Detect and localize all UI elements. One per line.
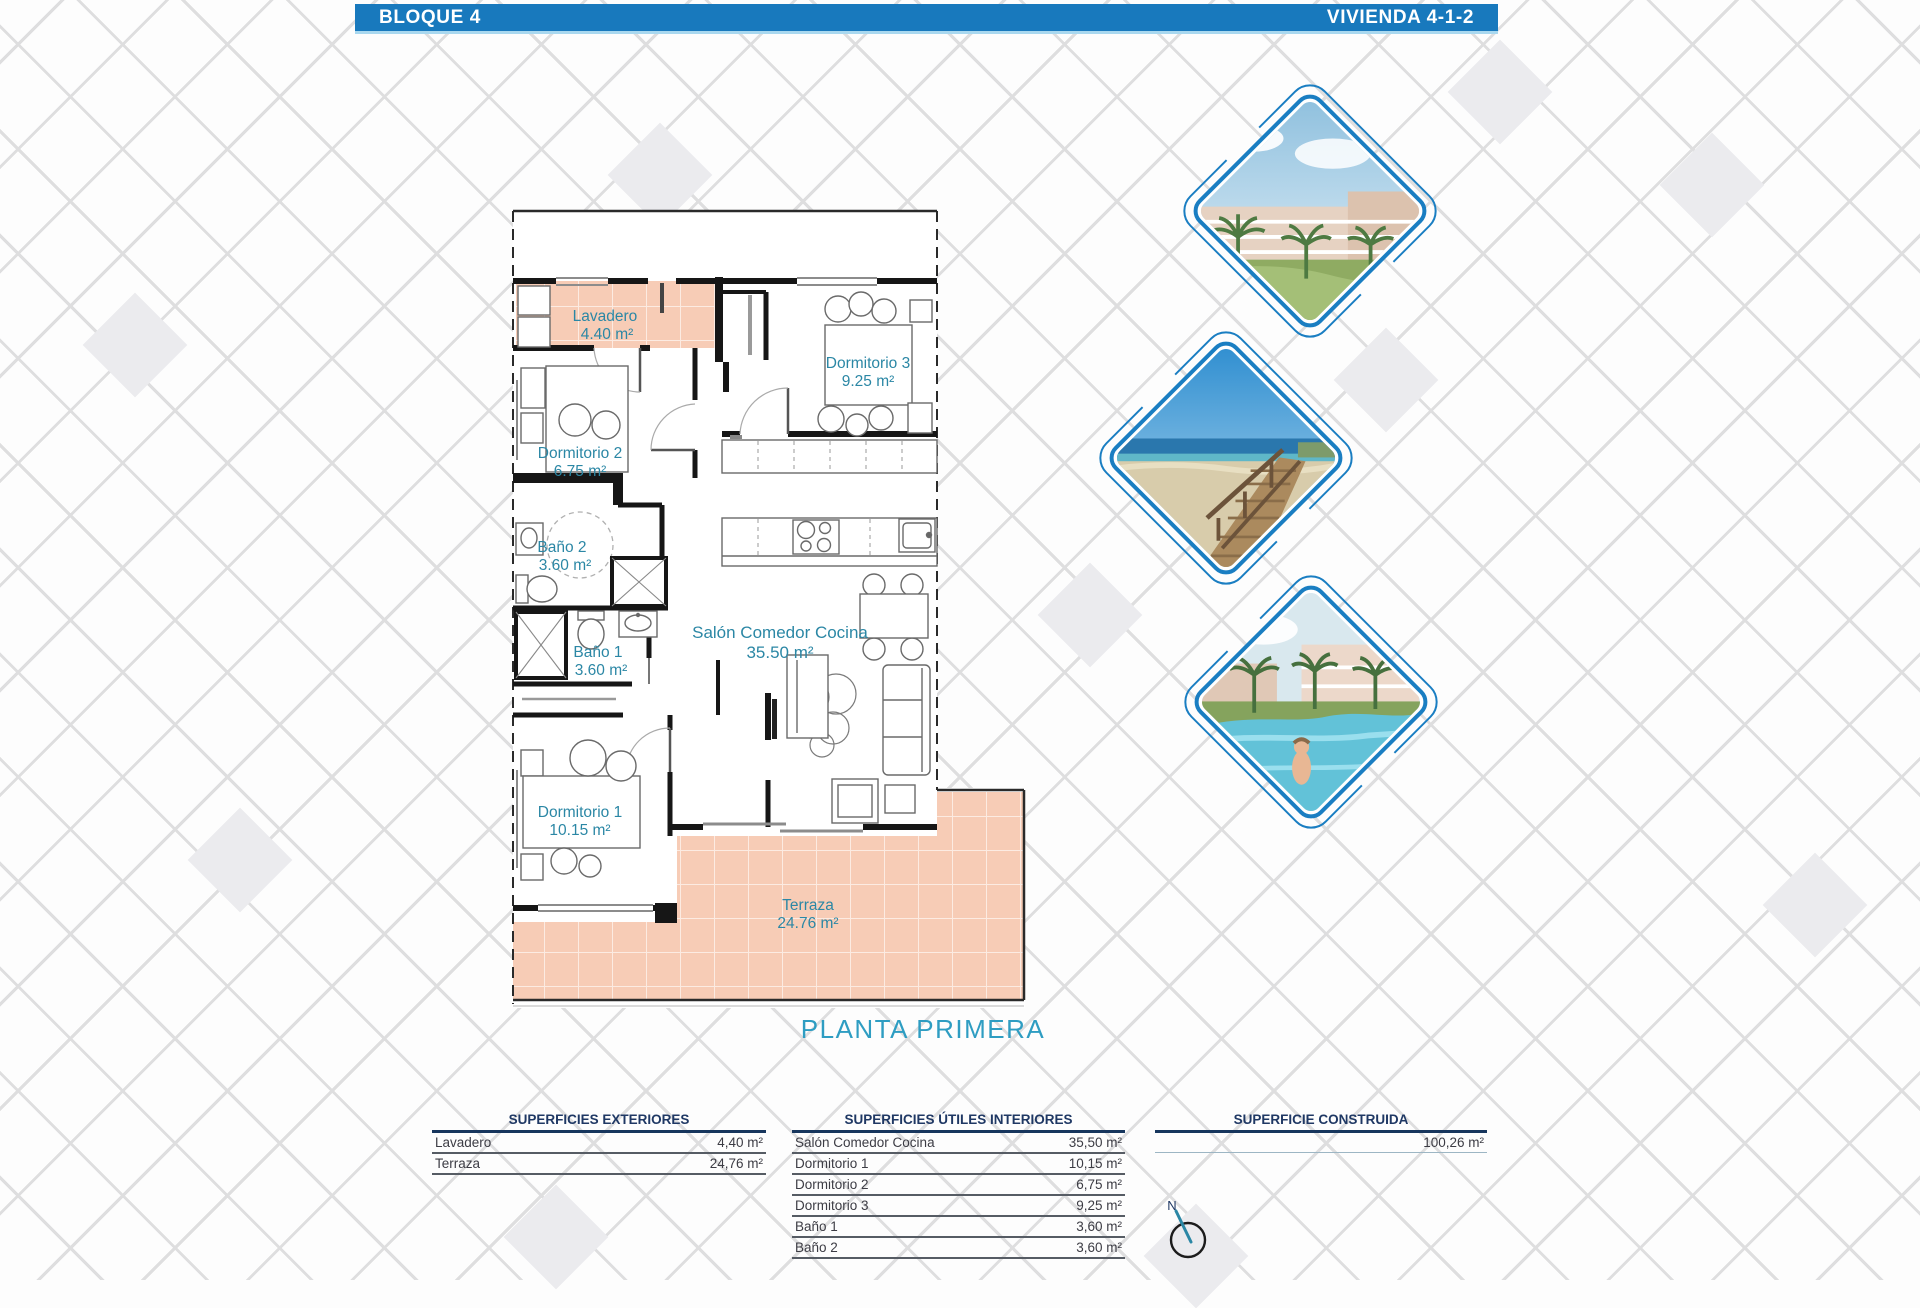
table-superficies-exteriores: SUPERFICIES EXTERIORES Lavadero 4,40 m² … [432, 1112, 766, 1175]
row-value: 10,15 m² [1069, 1156, 1122, 1171]
room-area-bano2: 3.60 m² [539, 557, 592, 574]
room-area-terraza: 24.76 m² [777, 915, 838, 932]
room-area-dormitorio1: 10.15 m² [549, 822, 610, 839]
plan-sheet: { "header": { "left_title": "BLOQUE 4", … [0, 0, 1920, 1280]
table-row: Lavadero 4,40 m² [432, 1133, 766, 1154]
row-value: 6,75 m² [1076, 1177, 1122, 1192]
compass-icon: N [1167, 1198, 1205, 1257]
room-area-dormitorio3: 9.25 m² [842, 373, 895, 390]
floor-plan: Lavadero 4.40 m² Dormitorio 3 9.25 m² Do… [0, 0, 1920, 1280]
row-label: Dormitorio 3 [795, 1198, 869, 1213]
room-area-lavadero: 4.40 m² [581, 326, 634, 343]
room-label-bano1: Baño 1 [573, 644, 622, 661]
row-label: Terraza [435, 1156, 480, 1171]
table-row: Baño 1 3,60 m² [792, 1217, 1125, 1238]
table-title: SUPERFICIES EXTERIORES [432, 1112, 766, 1133]
row-label: Lavadero [435, 1135, 491, 1150]
room-label-salon: Salón Comedor Cocina [692, 623, 868, 642]
table-row: 100,26 m² [1155, 1133, 1487, 1153]
row-label: Baño 2 [795, 1240, 838, 1255]
table-row: Dormitorio 1 10,15 m² [792, 1154, 1125, 1175]
row-value: 3,60 m² [1076, 1240, 1122, 1255]
room-label-lavadero: Lavadero [573, 308, 638, 325]
room-area-bano1: 3.60 m² [575, 662, 628, 679]
table-superficie-construida: SUPERFICIE CONSTRUIDA 100,26 m² [1155, 1112, 1487, 1153]
table-title: SUPERFICIE CONSTRUIDA [1155, 1112, 1487, 1133]
row-label: Baño 1 [795, 1219, 838, 1234]
header-bar: BLOQUE 4 VIVIENDA 4-1-2 [355, 4, 1498, 34]
room-label-dormitorio3: Dormitorio 3 [826, 355, 910, 372]
compass-north-label: N [1167, 1198, 1176, 1213]
room-label-terraza: Terraza [782, 897, 834, 914]
table-row: Dormitorio 3 9,25 m² [792, 1196, 1125, 1217]
table-row: Dormitorio 2 6,75 m² [792, 1175, 1125, 1196]
table-title: SUPERFICIES ÚTILES INTERIORES [792, 1112, 1125, 1133]
row-value: 9,25 m² [1076, 1198, 1122, 1213]
table-row: Baño 2 3,60 m² [792, 1238, 1125, 1259]
table-row: Terraza 24,76 m² [432, 1154, 766, 1175]
row-label: Dormitorio 2 [795, 1177, 869, 1192]
room-area-dormitorio2: 6.75 m² [554, 463, 607, 480]
room-label-bano2: Baño 2 [537, 539, 586, 556]
floor-title: PLANTA PRIMERA [801, 1014, 1045, 1044]
row-label: Dormitorio 1 [795, 1156, 869, 1171]
unit-title: VIVIENDA 4-1-2 [1327, 7, 1474, 29]
row-value: 100,26 m² [1423, 1135, 1484, 1150]
row-value: 35,50 m² [1069, 1135, 1122, 1150]
table-superficies-interiores: SUPERFICIES ÚTILES INTERIORES Salón Come… [792, 1112, 1125, 1259]
row-value: 3,60 m² [1076, 1219, 1122, 1234]
row-label: Salón Comedor Cocina [795, 1135, 935, 1150]
room-label-dormitorio2: Dormitorio 2 [538, 445, 622, 462]
row-value: 24,76 m² [710, 1156, 763, 1171]
row-value: 4,40 m² [717, 1135, 763, 1150]
block-title: BLOQUE 4 [379, 7, 481, 29]
table-row: Salón Comedor Cocina 35,50 m² [792, 1133, 1125, 1154]
room-label-dormitorio1: Dormitorio 1 [538, 804, 622, 821]
room-area-salon: 35.50 m² [746, 643, 813, 662]
